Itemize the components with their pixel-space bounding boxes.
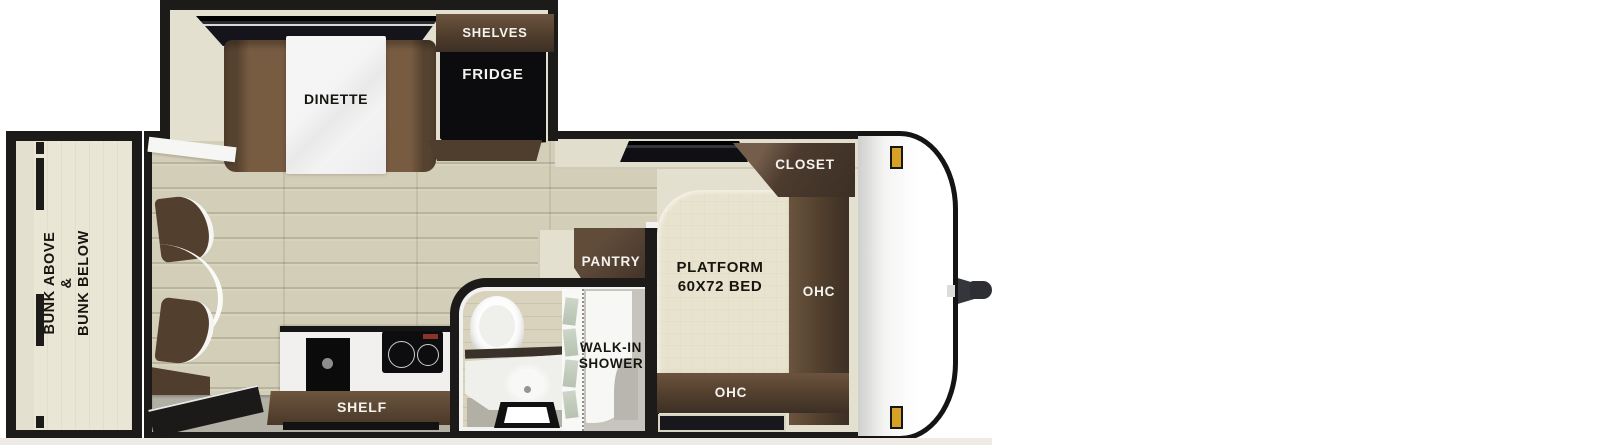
walk-in-shower-label-line2: SHOWER	[558, 356, 664, 372]
platform-bed-label-line1: PLATFORM	[656, 258, 784, 277]
fridge-label: FRIDGE	[440, 66, 546, 83]
fridge-cabinet-base	[428, 140, 542, 161]
ground-shadow	[0, 438, 992, 445]
vanity-sink-basin-icon	[512, 371, 543, 397]
bedroom-lower-window-icon	[658, 414, 786, 432]
platform-bed-label-line2: 60X72 BED	[656, 277, 784, 296]
sink-drain-icon	[322, 358, 333, 369]
ohc-side-label: OHC	[789, 284, 849, 300]
bunk-label: BUNK ABOVE & BUNK BELOW	[42, 153, 104, 413]
bath-mat-center	[504, 407, 550, 423]
bunk-label-line2: &	[59, 153, 76, 413]
dinette-label: DINETTE	[286, 91, 386, 107]
burner-icon	[388, 341, 415, 368]
bunk-door-hinge-icon	[36, 416, 44, 428]
platform-bed-label: PLATFORM 60X72 BED	[656, 258, 784, 296]
sink-drain-icon	[524, 386, 531, 393]
walk-in-shower-label-line1: WALK-IN	[558, 340, 664, 356]
bunk-label-line1: BUNK ABOVE	[42, 153, 59, 413]
burner-icon	[417, 344, 439, 366]
cooktop-controls-icon	[423, 334, 438, 339]
shelf-base-strip	[283, 422, 439, 430]
floorplan-canvas: BUNK ABOVE & BUNK BELOW DINETTE SHELVES …	[0, 0, 1600, 445]
shelf-label: SHELF	[267, 399, 457, 415]
ohc-foot-label: OHC	[657, 385, 805, 401]
front-cap	[858, 131, 958, 441]
marker-light-icon	[890, 406, 903, 429]
closet-label: CLOSET	[755, 157, 855, 173]
bedroom-window-icon	[620, 141, 748, 162]
toilet-bowl-icon	[479, 305, 515, 347]
hitch-ball-mount-icon	[970, 281, 992, 299]
pantry-label: PANTRY	[574, 254, 648, 270]
walk-in-shower-label: WALK-IN SHOWER	[558, 340, 664, 372]
marker-light-icon	[890, 146, 903, 169]
bunk-label-line3: BUNK BELOW	[76, 153, 93, 413]
hitch-latch-icon	[947, 285, 955, 297]
shelves-label: SHELVES	[436, 26, 554, 41]
